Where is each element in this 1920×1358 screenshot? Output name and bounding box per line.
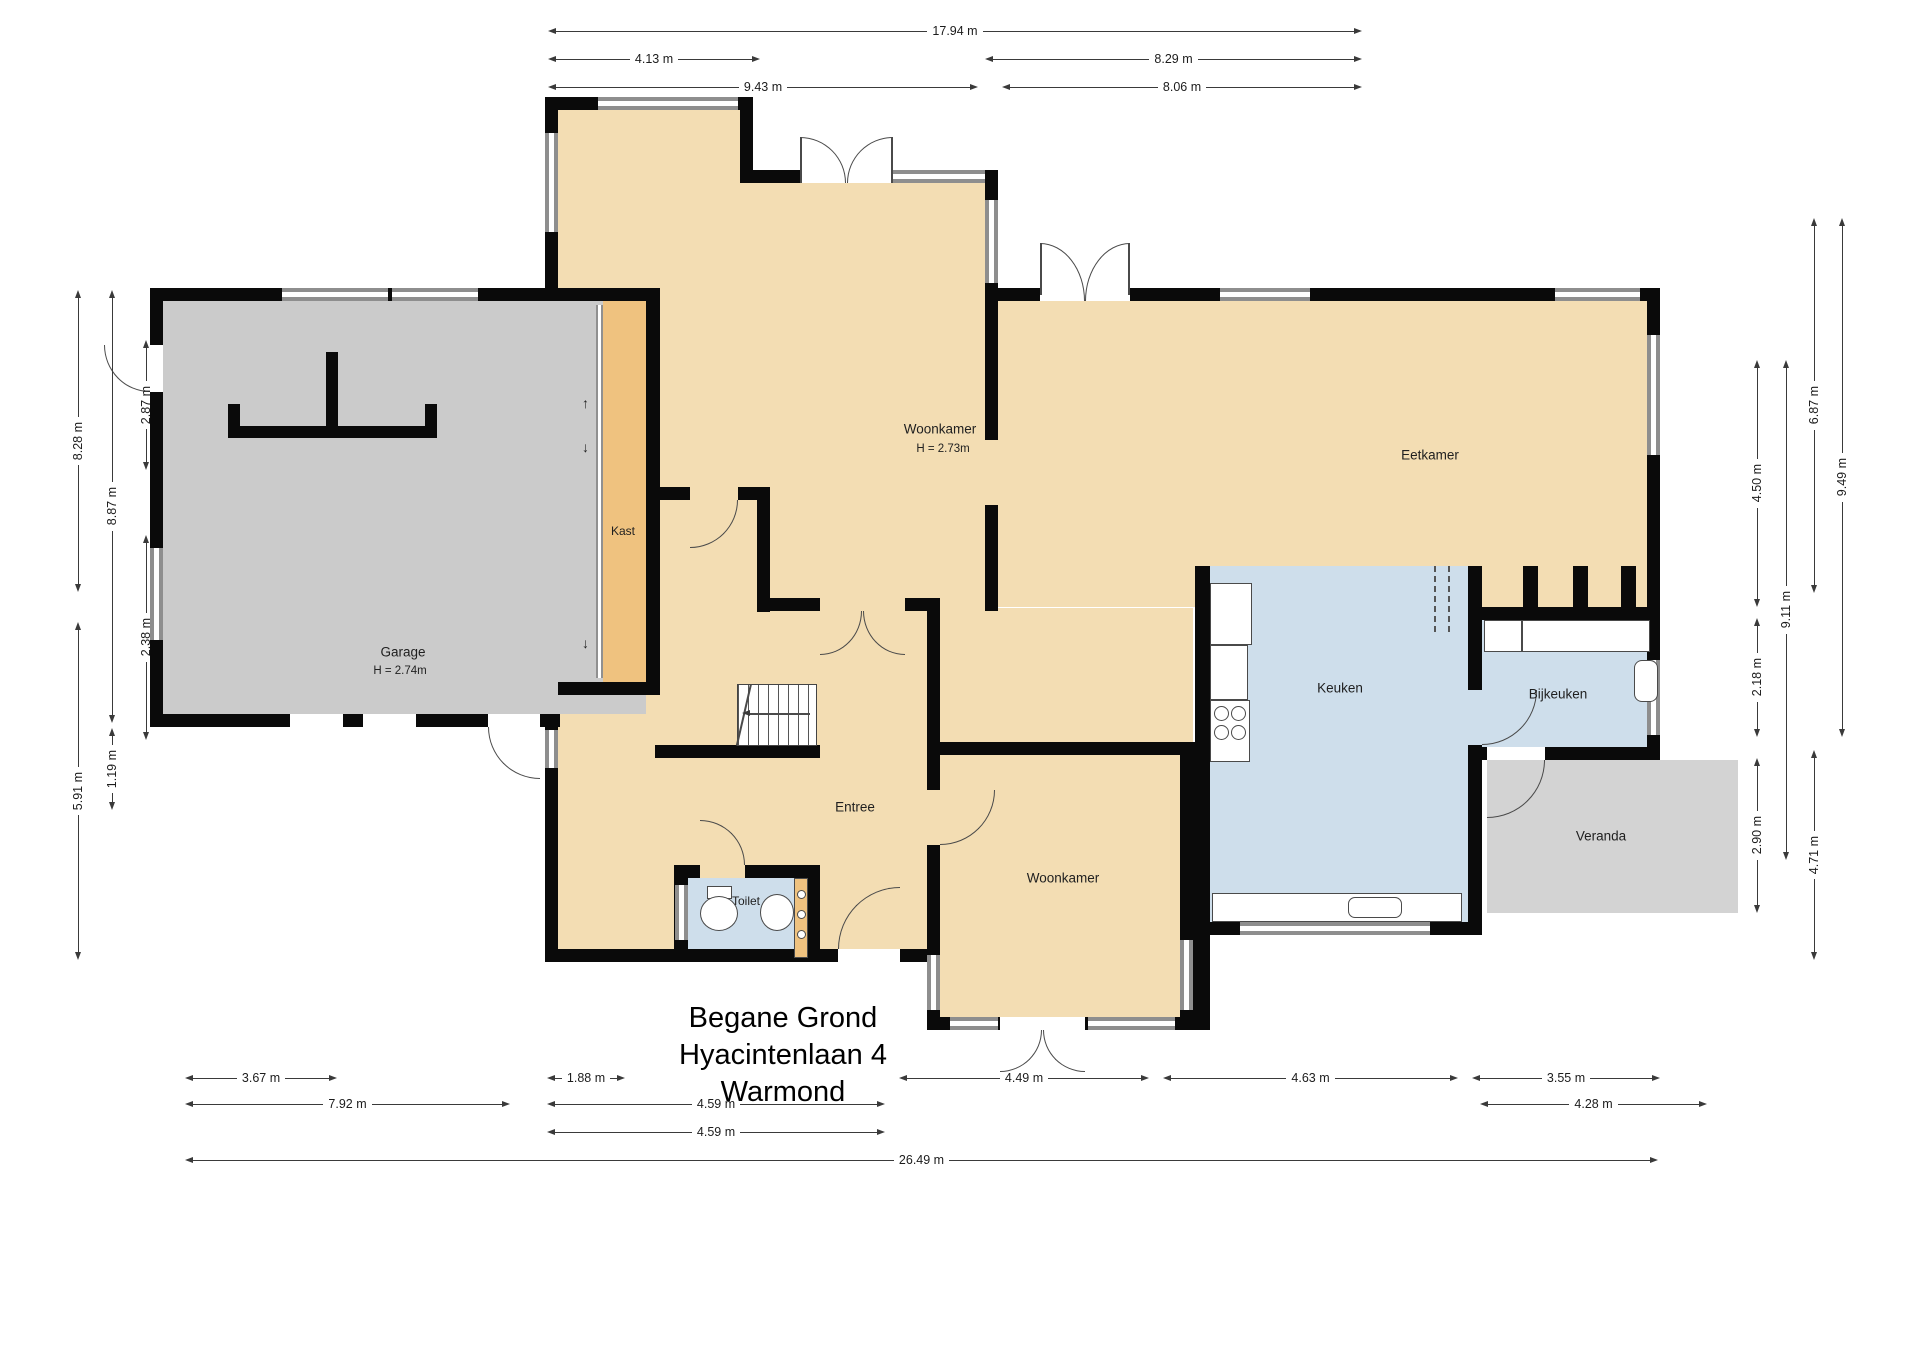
- door-opening: [838, 949, 900, 962]
- slide-arrow-down: ↓: [582, 440, 589, 454]
- dim-bottom-entree-c: 4.59 m: [547, 1125, 885, 1139]
- window: [1220, 288, 1310, 301]
- window: [1647, 335, 1660, 455]
- burner-icon: [1214, 706, 1229, 721]
- window: [545, 133, 558, 232]
- door-arc: [1000, 1030, 1042, 1072]
- dim-bottom-keuken: 4.63 m: [1163, 1071, 1458, 1085]
- burner-icon: [1231, 706, 1246, 721]
- window: [282, 288, 388, 301]
- wall-toilet-top: [674, 865, 820, 878]
- cased-opening: [985, 440, 998, 505]
- garage-marking: [228, 426, 437, 438]
- dim-left-inner-a: 2.87 m: [139, 340, 153, 470]
- door-arc: [800, 137, 846, 183]
- dim-left-lower: 5.91 m: [71, 622, 85, 960]
- window: [598, 97, 738, 110]
- window: [675, 885, 688, 940]
- room-label-entree: Entree: [835, 800, 875, 815]
- kitchen-counter-bottom: [1212, 893, 1462, 922]
- slide-arrow-up: ↑: [582, 396, 589, 410]
- room-label-garage: Garage: [380, 645, 425, 660]
- dim-top-left-a: 4.13 m: [548, 52, 760, 66]
- stair-arrow-head: [742, 710, 750, 716]
- door-leaf: [891, 137, 893, 183]
- room-label-woonkamer-top: Woonkamer: [904, 422, 977, 437]
- dim-top-left-b: 9.43 m: [548, 80, 978, 94]
- window: [1555, 288, 1640, 301]
- door-arc: [847, 137, 893, 183]
- door-opening: [488, 714, 540, 727]
- dim-right-eetkamer-h: 4.50 m: [1750, 360, 1764, 607]
- room-label-bijkeuken: Bijkeuken: [1529, 687, 1588, 702]
- sliding-door: [596, 305, 603, 678]
- toilet-sink-icon: [760, 894, 794, 931]
- cabinet-knob: [797, 890, 806, 899]
- door-arc: [1085, 243, 1130, 301]
- title-city: Warmond: [679, 1074, 887, 1111]
- dim-left-upper: 8.28 m: [71, 290, 85, 592]
- window: [893, 170, 985, 183]
- dim-right-upper: 6.87 m: [1807, 218, 1821, 593]
- wall-block-top: [940, 742, 1193, 755]
- door-leaf: [1040, 243, 1042, 295]
- dim-right-bijkeuken-h: 2.18 m: [1750, 618, 1764, 737]
- wall-stub: [1621, 566, 1636, 607]
- door-opening: [1468, 690, 1482, 745]
- slide-arrow-down: ↓: [582, 636, 589, 650]
- garage-door-pier: [290, 714, 343, 727]
- wall-bijkeuken-top: [1468, 607, 1660, 620]
- door-opening: [690, 487, 738, 500]
- room-label-kast: Kast: [611, 524, 635, 538]
- window: [545, 730, 558, 768]
- wall-under-stairs: [655, 745, 820, 758]
- wall-stub: [1573, 566, 1588, 607]
- room-label-keuken: Keuken: [1317, 681, 1363, 696]
- dim-bottom-veranda: 3.55 m: [1472, 1071, 1660, 1085]
- dim-right-mid: 9.11 m: [1779, 360, 1793, 860]
- room-label-eetkamer: Eetkamer: [1401, 448, 1459, 463]
- door-opening: [927, 790, 940, 845]
- door-opening: [700, 865, 745, 878]
- door-opening: [820, 598, 905, 611]
- garage-door-pier: [363, 714, 416, 727]
- dim-top-right-a: 8.29 m: [985, 52, 1362, 66]
- wall-stub: [1523, 566, 1538, 607]
- room-label-toilet: Toilet: [732, 894, 760, 908]
- dim-bottom-garage-b: 7.92 m: [185, 1097, 510, 1111]
- garage-marking: [326, 352, 338, 432]
- dim-top-total: 17.94 m: [548, 24, 1362, 38]
- dim-left-inner-c: 1.19 m: [105, 728, 119, 810]
- dim-right-total: 9.49 m: [1835, 218, 1849, 737]
- dim-left-inner-b: 2.38 m: [139, 535, 153, 740]
- window: [985, 200, 998, 283]
- door-arc: [488, 727, 540, 779]
- plan-title: Begane Grond Hyacintenlaan 4 Warmond: [679, 1000, 887, 1111]
- window: [950, 1017, 998, 1030]
- floor-eetkamer: [998, 301, 1647, 607]
- dim-bottom-veranda-b: 4.28 m: [1480, 1097, 1707, 1111]
- wall-kast-bottom: [558, 682, 660, 695]
- kitchen-cabinet: [1210, 583, 1252, 645]
- door-leaf: [1128, 243, 1130, 295]
- room-height-garage: H = 2.74m: [373, 665, 426, 677]
- dim-right-lower: 4.71 m: [1807, 750, 1821, 960]
- dim-right-veranda-h: 2.90 m: [1750, 758, 1764, 913]
- burner-icon: [1231, 725, 1246, 740]
- dim-bottom-woonkamer: 4.49 m: [899, 1071, 1149, 1085]
- door-leaf: [800, 137, 802, 183]
- stair-arrow-line: [750, 713, 810, 715]
- room-height-woonkamer-top: H = 2.73m: [916, 443, 969, 455]
- title-address: Hyacintenlaan 4: [679, 1037, 887, 1074]
- wall-hall-right: [757, 487, 770, 612]
- door-arc: [1043, 1030, 1085, 1072]
- window: [1240, 922, 1430, 935]
- room-label-woonkamer-bottom: Woonkamer: [1027, 871, 1100, 886]
- dim-bottom-total: 26.49 m: [185, 1153, 1658, 1167]
- wall-keuken-left: [1195, 566, 1210, 935]
- dim-top-right-b: 8.06 m: [1002, 80, 1362, 94]
- kitchen-counter: [1210, 645, 1248, 700]
- cased-opening-dashed: [1434, 566, 1450, 632]
- door-arc: [1040, 243, 1085, 301]
- dim-bottom-entree-a: 1.88 m: [547, 1071, 625, 1085]
- title-floor: Begane Grond: [679, 1000, 887, 1037]
- bijkeuken-counter: [1522, 620, 1650, 652]
- floor-woonkamer-top-right: [742, 180, 988, 608]
- door-opening: [1487, 747, 1545, 760]
- room-label-veranda: Veranda: [1576, 829, 1626, 844]
- window: [392, 288, 478, 301]
- dim-bottom-garage-a: 3.67 m: [185, 1071, 337, 1085]
- cabinet-knob: [797, 930, 806, 939]
- washer-icon: [1484, 620, 1522, 652]
- window: [1088, 1017, 1175, 1030]
- door-opening: [1000, 1017, 1085, 1030]
- floor-plan: ↑ ↓ ↓ Woonkamer H = 2.73m Garage H = 2.7…: [0, 0, 1920, 1358]
- floor-kast: [603, 301, 646, 682]
- bijkeuken-sink-icon: [1634, 660, 1658, 702]
- dim-left-garage: 8.87 m: [105, 290, 119, 723]
- kitchen-sink-icon: [1348, 897, 1402, 918]
- window: [927, 955, 940, 1010]
- window: [1180, 940, 1193, 1010]
- wall-toilet-right: [808, 865, 820, 962]
- cabinet-knob: [797, 910, 806, 919]
- burner-icon: [1214, 725, 1229, 740]
